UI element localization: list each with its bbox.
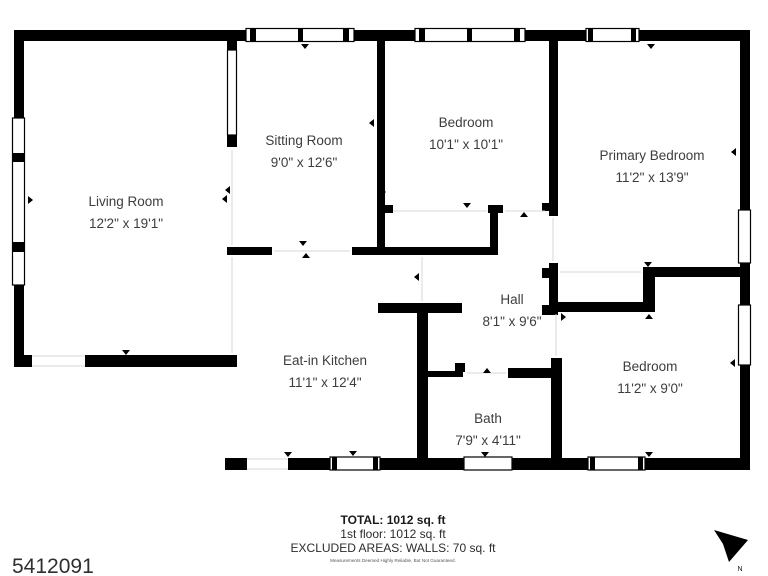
wall-sitting-bottom-left	[227, 247, 272, 255]
window-post	[250, 29, 256, 42]
door-marker	[349, 451, 357, 456]
door-marker	[645, 314, 653, 319]
compass: N	[714, 530, 748, 573]
room-dims-sitting: 9'0" x 12'6"	[271, 155, 338, 170]
door-marker	[463, 203, 471, 208]
wall-segment	[227, 41, 237, 50]
door-marker	[561, 313, 566, 321]
room-label-living: Living Room	[88, 194, 163, 209]
door-marker	[28, 196, 33, 204]
door-marker	[520, 212, 528, 217]
window-post	[419, 29, 425, 42]
window-post	[343, 29, 349, 42]
room-label-kitchen: Eat-in Kitchen	[283, 353, 367, 368]
door-marker	[369, 119, 374, 127]
room-dims-bedroom2: 11'2" x 9'0"	[617, 381, 683, 396]
wall-segment	[385, 205, 393, 213]
opening-hairlines	[232, 150, 641, 373]
door-marker	[414, 273, 419, 281]
wall-bath-top	[508, 368, 551, 378]
window-post	[631, 29, 636, 42]
room-label-bedroom: Bedroom	[439, 115, 494, 130]
wall-segment	[542, 203, 549, 211]
door-marker	[483, 368, 491, 373]
door-marker	[645, 452, 653, 457]
door-marker	[644, 262, 652, 267]
window-post	[588, 29, 593, 42]
window-mullion	[13, 242, 25, 252]
window-mullion	[467, 29, 472, 42]
window-mullion	[298, 29, 303, 42]
room-dims-living: 12'2" x 19'1"	[89, 216, 163, 231]
window-post	[638, 457, 643, 470]
wall-hall-east	[549, 263, 558, 315]
door-marker	[299, 241, 307, 246]
door-marker	[481, 452, 489, 457]
room-dims-bath: 7'9" x 4'11"	[455, 433, 521, 448]
north-label: N	[737, 566, 742, 573]
pony-wall-living-sitting	[228, 50, 237, 135]
room-dims-kitchen: 11'1" x 12'4"	[288, 375, 361, 390]
wall-segment	[227, 135, 237, 147]
disclaimer-text: Measurements Deemed Highly Reliable, But…	[330, 558, 456, 563]
wall-segment	[455, 363, 465, 372]
room-dims-primary: 11'2" x 13'9"	[615, 170, 688, 185]
room-label-bedroom2: Bedroom	[623, 359, 678, 374]
wall-primary-bottom	[643, 267, 747, 277]
wall-segment	[542, 305, 549, 315]
wall-closet-side	[490, 205, 498, 255]
door-marker	[731, 148, 736, 156]
room-dims-bedroom: 10'1" x 10'1"	[429, 137, 503, 152]
door-marker	[647, 44, 655, 49]
window-post	[373, 457, 378, 470]
listing-id: 5412091	[12, 555, 94, 576]
floorplan-svg: Living Room 12'2" x 19'1" Sitting Room 9…	[0, 0, 768, 576]
wall-kitchen-hall	[378, 303, 462, 313]
room-label-bath: Bath	[474, 411, 502, 426]
window-kitchen-bottom	[330, 457, 380, 470]
window-bedroom2-bottom	[588, 457, 645, 470]
door-marker	[122, 350, 130, 355]
room-label-sitting: Sitting Room	[265, 133, 342, 148]
north-arrow-icon	[714, 530, 748, 562]
window-living-left	[13, 118, 25, 285]
window-primary-right	[739, 210, 751, 263]
window-bath-bottom	[464, 457, 512, 470]
door-marker	[730, 359, 735, 367]
room-dims-hall: 8'1" x 9'6"	[482, 314, 541, 329]
first-floor-text: 1st floor: 1012 sq. ft	[340, 527, 446, 541]
wall-sitting-bedroom	[377, 41, 385, 255]
room-label-hall: Hall	[500, 292, 523, 307]
excluded-area-text: EXCLUDED AREAS: WALLS: 70 sq. ft	[291, 541, 497, 555]
room-label-primary: Primary Bedroom	[599, 148, 704, 163]
window-bedroom2-right	[739, 305, 751, 365]
window-post	[514, 29, 520, 42]
wall-bath-bedroom2	[551, 358, 562, 458]
floorplan-page: Living Room 12'2" x 19'1" Sitting Room 9…	[0, 0, 768, 576]
door-marker	[284, 452, 292, 457]
exterior-door-gaps	[32, 354, 288, 471]
room-labels: Living Room 12'2" x 19'1" Sitting Room 9…	[88, 115, 704, 448]
door-marker	[222, 195, 227, 203]
wall-bedroom-primary	[549, 41, 558, 216]
wall-segment	[542, 268, 549, 278]
door-marker	[225, 186, 230, 194]
window-post	[332, 457, 337, 470]
wall-kitchen-bath	[417, 313, 428, 458]
window-mullion	[13, 153, 25, 162]
total-area-text: TOTAL: 1012 sq. ft	[341, 513, 446, 527]
door-marker	[301, 44, 309, 49]
wall-bedroom2-top	[558, 302, 655, 312]
door-marker	[302, 253, 310, 258]
area-summary: TOTAL: 1012 sq. ft 1st floor: 1012 sq. f…	[291, 513, 497, 563]
wall-sitting-bottom-right	[352, 247, 498, 255]
window-post	[590, 457, 595, 470]
